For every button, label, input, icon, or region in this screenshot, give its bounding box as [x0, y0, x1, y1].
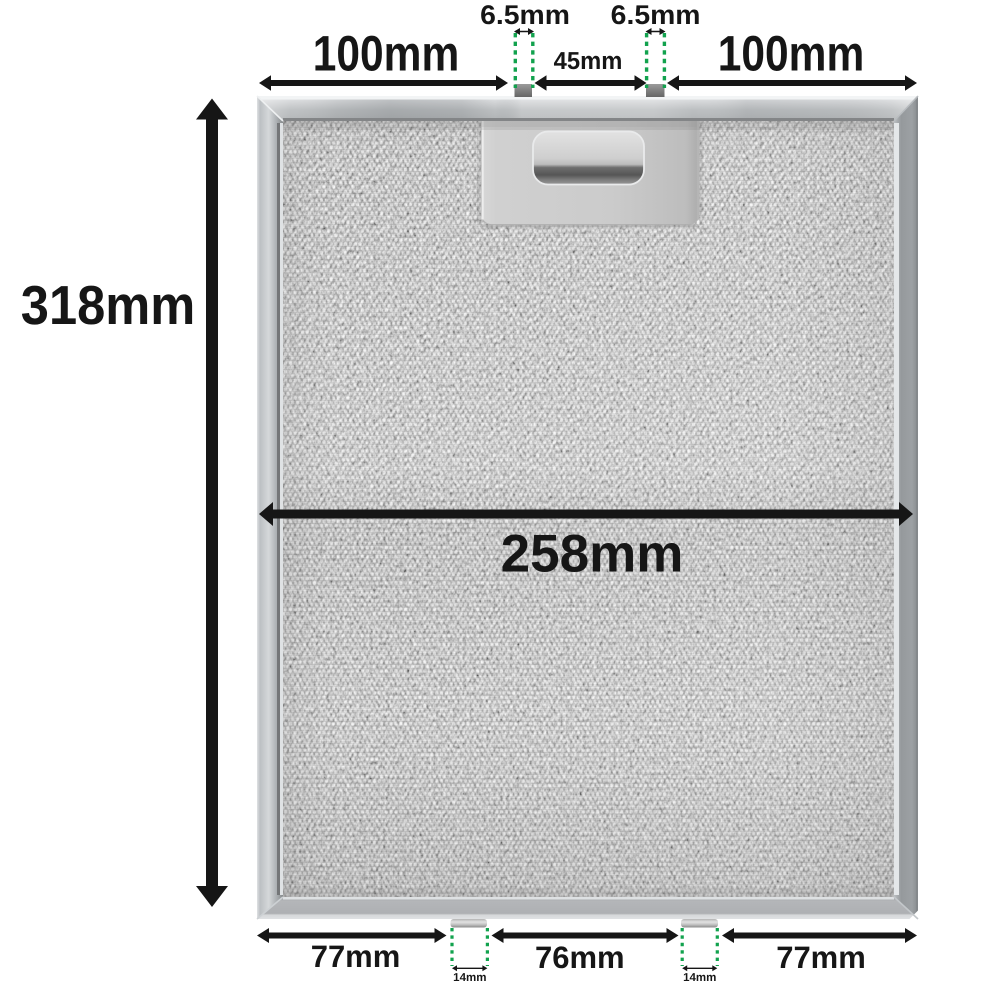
svg-text:6.5mm: 6.5mm — [480, 0, 570, 30]
svg-text:100mm: 100mm — [718, 26, 864, 82]
svg-text:14mm: 14mm — [453, 972, 486, 984]
svg-text:76mm: 76mm — [535, 940, 625, 975]
svg-text:100mm: 100mm — [313, 26, 459, 82]
svg-text:14mm: 14mm — [683, 972, 716, 984]
svg-text:45mm: 45mm — [554, 48, 623, 75]
svg-text:318mm: 318mm — [21, 274, 195, 336]
svg-text:77mm: 77mm — [311, 939, 401, 974]
svg-text:77mm: 77mm — [776, 940, 866, 975]
svg-text:6.5mm: 6.5mm — [611, 0, 701, 30]
svg-text:258mm: 258mm — [501, 525, 684, 584]
